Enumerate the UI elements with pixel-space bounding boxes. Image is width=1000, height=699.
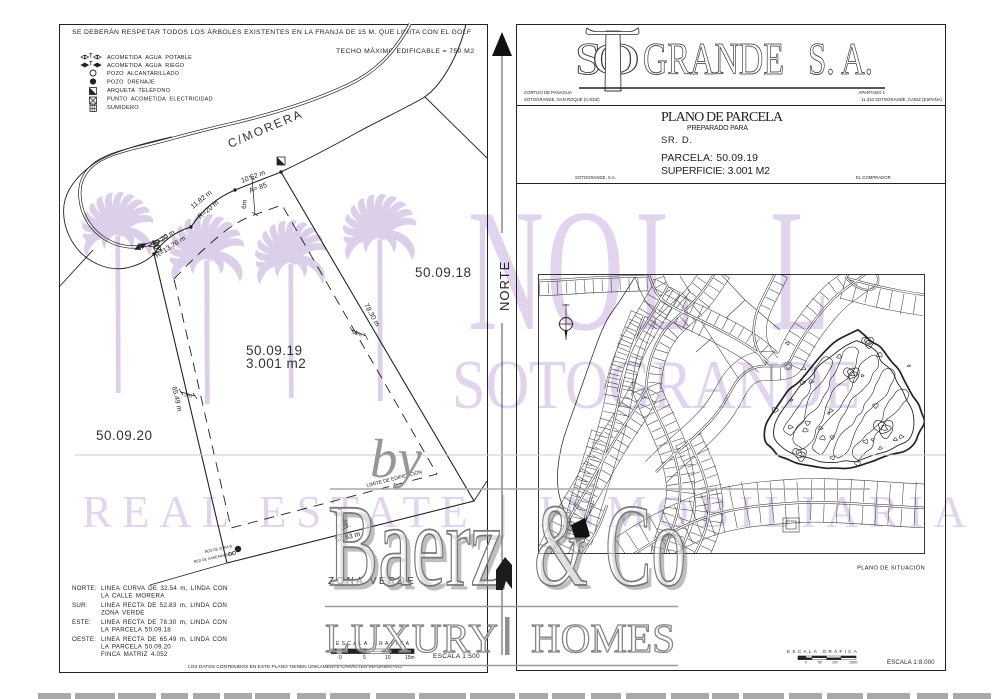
svg-text:POZO ALCANTARILLADO: POZO ALCANTARILLADO [107, 71, 180, 77]
svg-text:L: L [770, 173, 830, 367]
svg-text:EL COMPRADOR: EL COMPRADOR [856, 175, 891, 180]
svg-text:FINCA MATRIZ 4.052: FINCA MATRIZ 4.052 [101, 651, 168, 658]
svg-text:PUNTO ACOMETIDA ELECTRICIDAD: PUNTO ACOMETIDA ELECTRICIDAD [107, 97, 213, 103]
svg-text:O: O [546, 173, 624, 367]
svg-text:ACOMETIDA AGUA POTABLE: ACOMETIDA AGUA POTABLE [107, 55, 192, 61]
svg-text:65.49 m: 65.49 m [170, 386, 183, 412]
svg-text:NORTE:: NORTE: [72, 585, 97, 592]
svg-text:LINEA RECTA DE 78.30 m, LINDA: LINEA RECTA DE 78.30 m, LINDA CON [101, 619, 227, 626]
svg-text:GRANDE: GRANDE [643, 34, 784, 84]
svg-text:LA PARCELA 50.09.20: LA PARCELA 50.09.20 [101, 644, 171, 651]
svg-text:REAL ESTATE | INMOBILIARIA: REAL ESTATE | INMOBILIARIA [82, 487, 967, 537]
svg-text:& Co: & Co [534, 480, 686, 611]
svg-text:6m: 6m [241, 200, 249, 209]
svg-text:HOMES: HOMES [531, 615, 675, 661]
svg-text:ESCALA 1:8.000: ESCALA 1:8.000 [887, 660, 935, 666]
svg-text:3m: 3m [183, 392, 192, 400]
svg-text:LA CALLE MORERA: LA CALLE MORERA [101, 593, 165, 600]
svg-text:LINEA RECTA DE 52.83 m, LINDA: LINEA RECTA DE 52.83 m, LINDA CON [101, 602, 227, 609]
svg-text:SR. D.: SR. D. [661, 135, 693, 146]
svg-text:50.09.20: 50.09.20 [96, 428, 153, 443]
svg-text:PLANO DE PARCELA: PLANO DE PARCELA [661, 110, 784, 125]
svg-text:Baerz: Baerz [328, 480, 504, 611]
svg-text:LOS DATOS CONTENIDOS EN ESTE P: LOS DATOS CONTENIDOS EN ESTE PLANO TIENE… [188, 663, 402, 670]
svg-text:SOTOGRANDE, SAN ROQUE (CADIZ): SOTOGRANDE, SAN ROQUE (CADIZ) [524, 97, 600, 102]
svg-text:LINEA RECTA DE 65.49 m, LINDA: LINEA RECTA DE 65.49 m, LINDA CON [101, 636, 227, 643]
svg-text:50.09.18: 50.09.18 [415, 265, 472, 280]
svg-text:TECHO MÁXIMO EDIFICABLE = 750: TECHO MÁXIMO EDIFICABLE = 750 M2 [336, 46, 474, 55]
svg-text:PARCELA: 50.09.19: PARCELA: 50.09.19 [661, 152, 758, 164]
svg-text:150m: 150m [849, 661, 858, 665]
svg-text:ZONA VERDE: ZONA VERDE [101, 610, 145, 617]
svg-text:100: 100 [832, 661, 838, 665]
svg-text:11.310 SOTOGRANDE, CADIZ (ESPA: 11.310 SOTOGRANDE, CADIZ (ESPAÑA) [861, 97, 943, 102]
svg-text:ACOMETIDA AGUA RIEGO: ACOMETIDA AGUA RIEGO [107, 63, 185, 69]
svg-text:SE DEBERÁN RESPETAR TODOS LOS: SE DEBERÁN RESPETAR TODOS LOS ÁRBOLES EX… [72, 27, 471, 36]
svg-text:POZO DRENAJE: POZO DRENAJE [107, 80, 155, 86]
svg-text:3m: 3m [353, 330, 363, 338]
svg-text:SUMIDERO: SUMIDERO [107, 105, 139, 111]
svg-text:ESCALA GRÁFICA: ESCALA GRÁFICA [787, 648, 858, 654]
svg-text:PLANO DE SITUACIÓN: PLANO DE SITUACIÓN [857, 565, 925, 572]
svg-text:PREPARADO PARA: PREPARADO PARA [687, 125, 748, 132]
svg-text:LUXURY: LUXURY [325, 615, 498, 661]
svg-text:LINEA CURVA DE 32.54 m, LINDA: LINEA CURVA DE 32.54 m, LINDA CON [101, 585, 228, 592]
svg-text:N: N [468, 173, 544, 367]
svg-text:0: 0 [805, 661, 807, 665]
svg-text:L: L [636, 173, 694, 367]
svg-text:SOTOGRANDE: SOTOGRANDE [452, 347, 860, 424]
svg-text:OESTE:: OESTE: [72, 636, 96, 643]
svg-text:C/MORERA: C/MORERA [226, 107, 305, 151]
svg-text:50: 50 [818, 661, 822, 665]
svg-text:APARTADO 1: APARTADO 1 [858, 90, 885, 95]
svg-text:SUR:: SUR: [72, 602, 88, 609]
svg-text:CORTIJO DE PANAGUA: CORTIJO DE PANAGUA [524, 90, 572, 95]
svg-text:LA PARCELA 50.09.18: LA PARCELA 50.09.18 [101, 627, 171, 634]
svg-text:RED DE SANEAMIENTO: RED DE SANEAMIENTO [193, 552, 234, 564]
svg-text:3.001 m2: 3.001 m2 [246, 356, 306, 371]
svg-text:S. A.: S. A. [808, 34, 873, 84]
svg-text:ARQUETA TELÉFONO: ARQUETA TELÉFONO [107, 87, 171, 94]
svg-text:ESTE:: ESTE: [72, 619, 91, 626]
